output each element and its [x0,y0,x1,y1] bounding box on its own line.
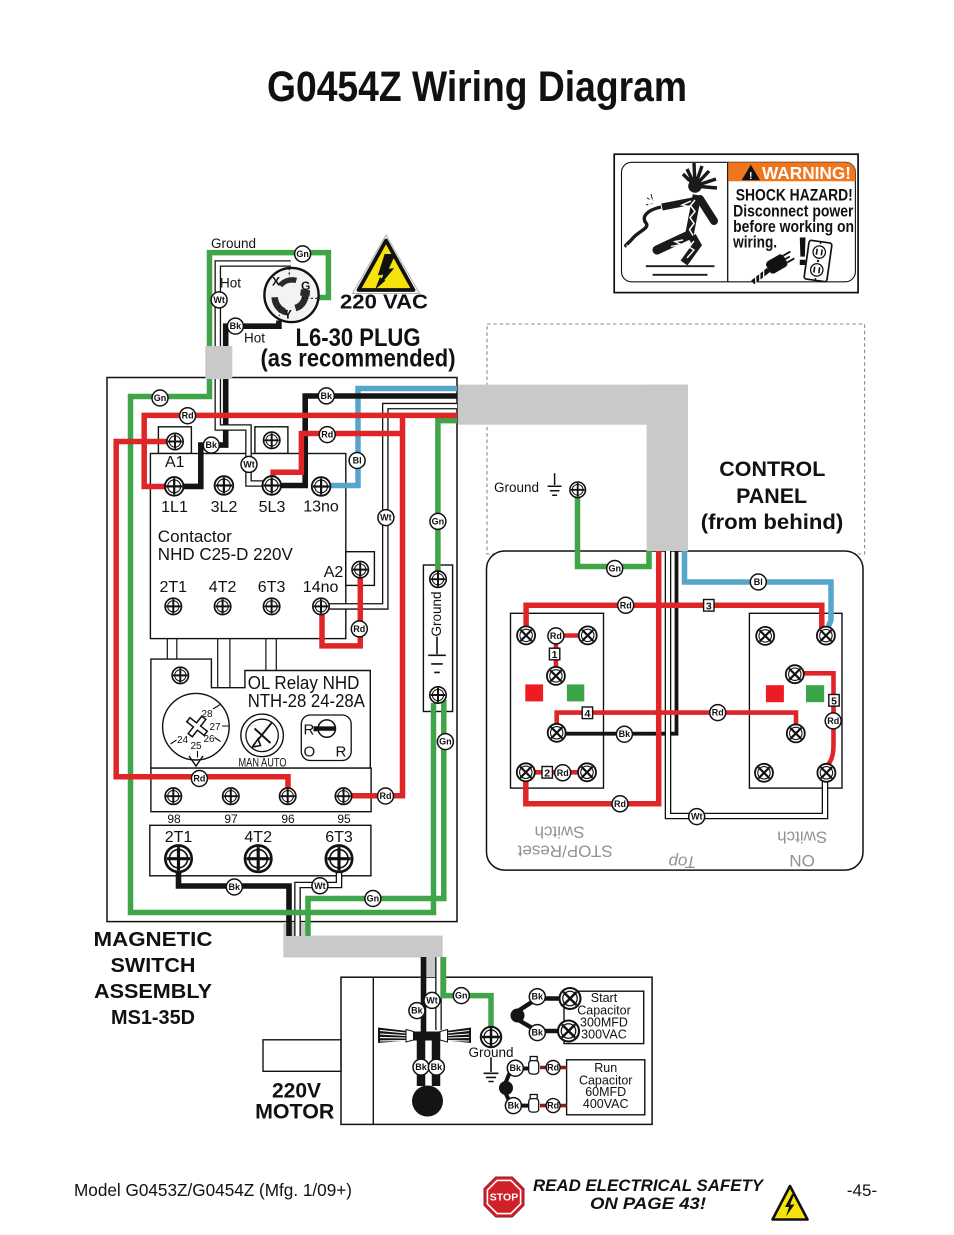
svg-text:1: 1 [552,649,558,661]
svg-text:14no: 14no [303,579,339,596]
svg-text:NTH-28 24-28A: NTH-28 24-28A [248,691,365,711]
svg-text:Rd: Rd [557,768,569,778]
svg-text:Rd: Rd [620,600,632,610]
svg-text:98: 98 [167,812,181,826]
svg-text:Wt: Wt [213,295,225,305]
svg-text:Bk: Bk [510,1063,522,1073]
svg-text:Gn: Gn [296,249,309,259]
svg-text:5: 5 [831,695,837,707]
svg-text:Wt: Wt [426,995,438,1005]
svg-text:Top: Top [669,853,697,872]
svg-text:Ground: Ground [211,236,256,251]
svg-text:Wt: Wt [380,513,392,523]
svg-text:Ground: Ground [429,591,444,636]
svg-text:95: 95 [337,812,351,826]
svg-text:(as recommended): (as recommended) [261,345,456,373]
svg-text:G: G [301,279,310,293]
svg-text:Gn: Gn [439,737,452,747]
svg-text:Rd: Rd [353,624,365,634]
svg-text:ASSEMBLY: ASSEMBLY [94,981,213,1003]
svg-text:READ ELECTRICAL SAFETY: READ ELECTRICAL SAFETY [533,1177,765,1195]
svg-text:Wt: Wt [314,881,326,891]
svg-text:Rd: Rd [193,774,205,784]
svg-text:STOP: STOP [490,1192,518,1204]
svg-text:3: 3 [706,600,712,612]
svg-text:R: R [336,744,347,761]
svg-text:MOTOR: MOTOR [255,1101,334,1124]
svg-text:Bk: Bk [411,1006,423,1016]
svg-text:Bk: Bk [321,391,333,401]
svg-text:2T1: 2T1 [165,829,193,846]
svg-text:6T3: 6T3 [258,579,286,596]
svg-text:Model G0453Z/G0454Z (Mfg. 1/09: Model G0453Z/G0454Z (Mfg. 1/09+) [74,1180,352,1200]
svg-text:Hot: Hot [244,331,265,346]
svg-text:A1: A1 [165,454,185,471]
svg-text:Gn: Gn [608,564,621,574]
svg-text:4: 4 [584,708,590,720]
svg-text:Switch: Switch [777,828,827,847]
svg-text:MAGNETIC: MAGNETIC [94,929,213,951]
svg-text:-45-: -45- [847,1181,877,1200]
svg-text:300VAC: 300VAC [581,1028,627,1042]
svg-text:OL Relay NHD: OL Relay NHD [248,673,360,693]
svg-text:Bk: Bk [619,729,631,739]
svg-text:27: 27 [209,722,221,733]
svg-text:X: X [272,275,280,289]
svg-text:4T2: 4T2 [209,579,237,596]
svg-text:220V: 220V [272,1080,321,1103]
svg-text:Rd: Rd [550,631,562,641]
svg-text:Bl: Bl [754,577,763,587]
svg-text:Bk: Bk [508,1101,520,1111]
svg-text:MAN AUTO: MAN AUTO [239,756,287,770]
svg-text:28: 28 [201,709,213,720]
svg-text:ON PAGE 43!: ON PAGE 43! [590,1195,707,1213]
svg-text:Y: Y [284,308,292,322]
svg-text:Bk: Bk [431,1062,443,1072]
svg-text:CONTROL: CONTROL [719,458,825,481]
svg-text:26: 26 [203,734,215,745]
svg-text:O: O [304,744,316,761]
svg-text:13no: 13no [303,499,339,516]
svg-text:24: 24 [177,735,189,746]
svg-text:Bk: Bk [532,992,544,1002]
svg-text:Rd: Rd [321,430,333,440]
svg-text:4T2: 4T2 [244,829,272,846]
svg-text:Rd: Rd [614,799,626,809]
svg-text:MS1-35D: MS1-35D [111,1007,195,1029]
svg-text:(from behind): (from behind) [701,511,844,534]
svg-text:R: R [304,722,315,739]
svg-text:NHD C25-D 220V: NHD C25-D 220V [158,544,293,564]
svg-text:Bl: Bl [353,456,362,466]
svg-text:2: 2 [544,767,550,779]
svg-text:Rd: Rd [182,411,194,421]
svg-text:WARNING!: WARNING! [762,163,851,183]
svg-text:Rd: Rd [547,1101,559,1111]
svg-text:Bk: Bk [532,1028,544,1038]
svg-text:STOP/Reset: STOP/Reset [517,842,612,861]
svg-text:25: 25 [190,741,202,752]
svg-text:Gn: Gn [367,894,380,904]
svg-text:96: 96 [281,812,295,826]
svg-text:5L3: 5L3 [259,499,286,516]
svg-text:Rd: Rd [712,708,724,718]
svg-text:!: ! [749,170,753,182]
svg-text:97: 97 [224,812,238,826]
svg-text:G0454Z Wiring Diagram: G0454Z Wiring Diagram [267,63,687,111]
svg-text:3L2: 3L2 [211,499,238,516]
svg-text:wiring.: wiring. [732,234,777,252]
svg-text:PANEL: PANEL [736,485,807,508]
svg-text:Bk: Bk [206,440,218,450]
svg-text:Gn: Gn [432,516,445,526]
svg-text:Switch: Switch [535,823,585,842]
svg-text:Bk: Bk [415,1062,427,1072]
svg-text:Ground: Ground [468,1045,513,1060]
svg-text:Gn: Gn [154,393,167,403]
svg-text:ON: ON [789,851,815,870]
svg-text:Bk: Bk [229,882,241,892]
svg-text:Gn: Gn [455,991,468,1001]
svg-text:Ground: Ground [494,480,539,495]
svg-text:Wt: Wt [691,812,703,822]
svg-text:SWITCH: SWITCH [111,955,196,977]
svg-text:Rd: Rd [380,791,392,801]
svg-text:2T1: 2T1 [160,579,188,596]
svg-text:Rd: Rd [547,1063,559,1073]
svg-text:Bk: Bk [230,321,242,331]
svg-text:Wt: Wt [243,459,255,469]
svg-text:400VAC: 400VAC [583,1097,629,1111]
svg-text:6T3: 6T3 [325,829,353,846]
svg-text:220 VAC: 220 VAC [340,292,428,314]
svg-text:1L1: 1L1 [161,499,188,516]
svg-text:Hot: Hot [220,276,241,291]
svg-text:Rd: Rd [827,716,839,726]
